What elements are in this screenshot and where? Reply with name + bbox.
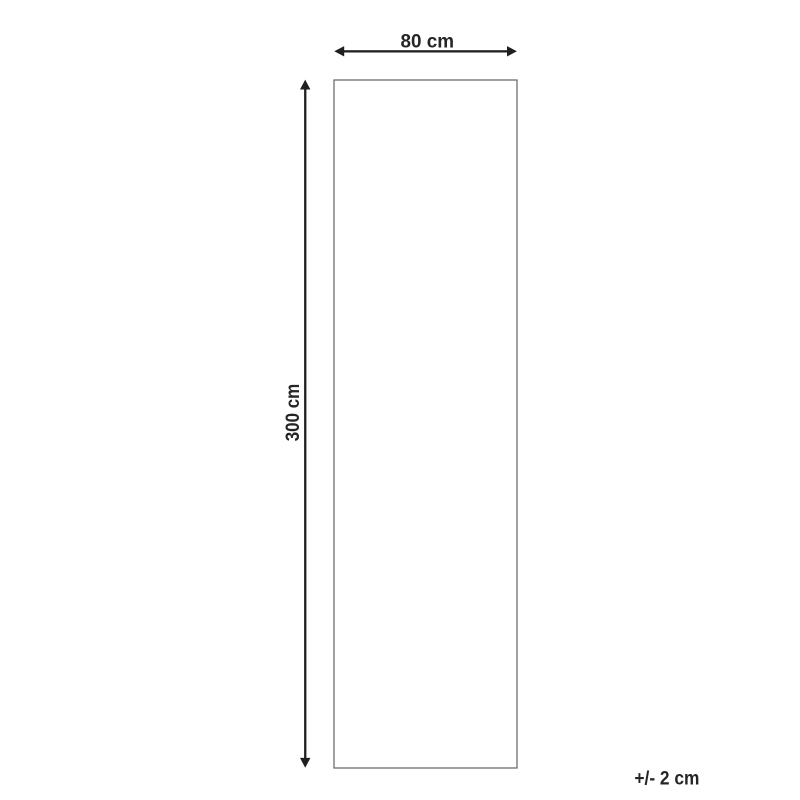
svg-text:300 cm: 300 cm [283,384,304,442]
svg-text:80 cm: 80 cm [401,32,455,53]
svg-text:+/- 2 cm: +/- 2 cm [634,769,699,790]
